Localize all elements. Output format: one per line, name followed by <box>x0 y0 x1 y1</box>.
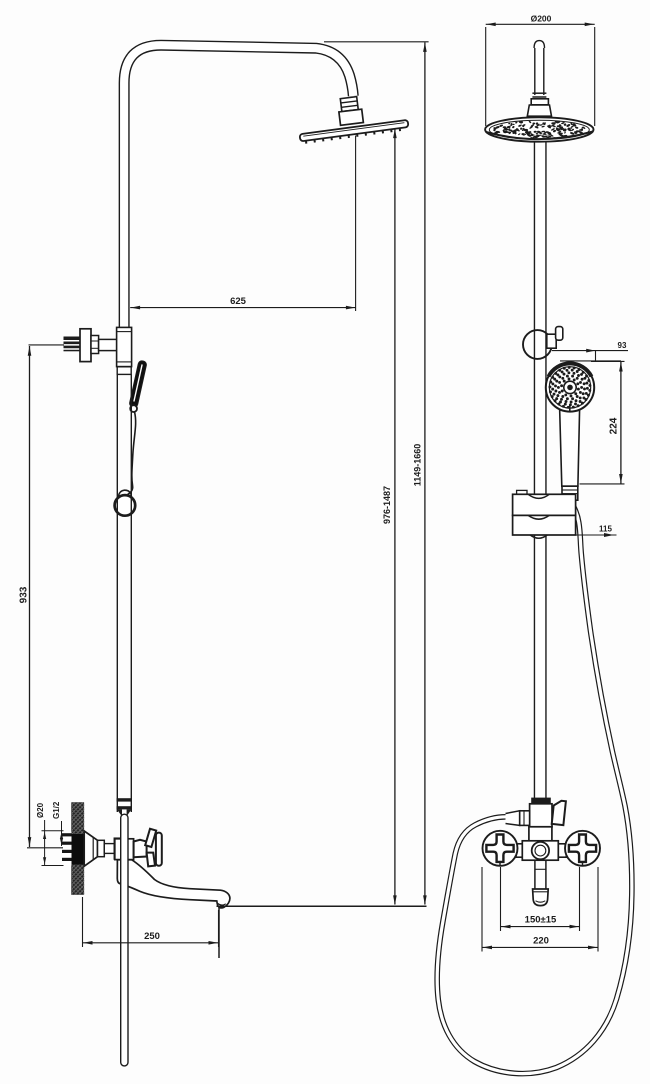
svg-text:224: 224 <box>609 417 620 434</box>
svg-text:1149-1660: 1149-1660 <box>413 444 423 487</box>
svg-text:Ø20: Ø20 <box>36 802 45 818</box>
svg-text:220: 220 <box>533 935 549 946</box>
svg-text:93: 93 <box>618 341 627 350</box>
svg-text:250: 250 <box>144 931 160 942</box>
svg-text:976-1487: 976-1487 <box>382 486 392 524</box>
svg-text:115: 115 <box>599 525 612 534</box>
svg-text:933: 933 <box>19 586 30 603</box>
svg-text:150±15: 150±15 <box>525 915 557 926</box>
svg-text:G1/2: G1/2 <box>52 801 61 819</box>
svg-text:625: 625 <box>230 296 247 307</box>
svg-text:Ø200: Ø200 <box>531 14 552 24</box>
